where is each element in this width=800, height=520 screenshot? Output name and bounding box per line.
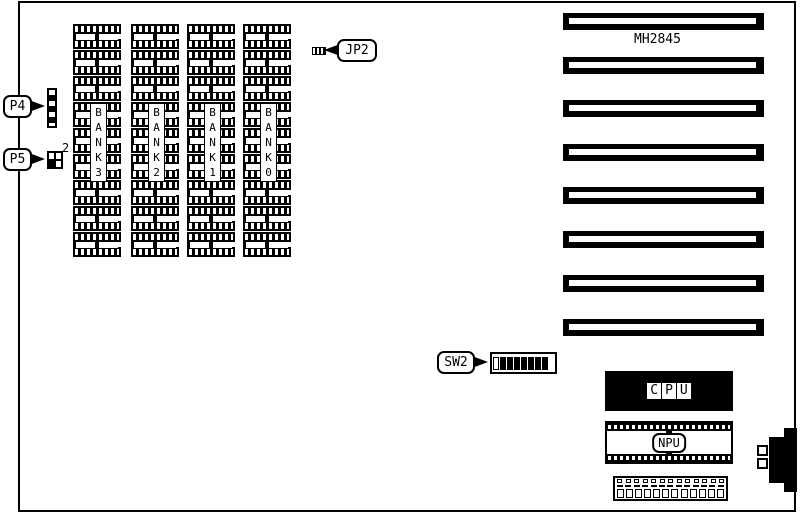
chip-body — [133, 190, 177, 196]
expansion-slot-contact-strip — [569, 62, 756, 68]
sw2-switch-label: SW2 — [437, 351, 475, 374]
chip-pin-row-icon — [75, 26, 119, 32]
dram-chip — [243, 180, 291, 205]
jp2-jumper-label: JP2 — [337, 39, 377, 62]
keyboard-connector-icon — [769, 437, 797, 483]
p5-pin-header-icon — [47, 151, 63, 169]
cpu-label-letter: U — [677, 383, 691, 399]
chip-pin-row-icon — [133, 249, 177, 255]
dram-chip — [187, 232, 235, 257]
chip-pin-row-icon — [189, 197, 233, 203]
chip-pin-row-icon — [189, 93, 233, 99]
memory-bank-label: BANK2 — [148, 103, 165, 182]
dram-chip — [131, 232, 179, 257]
chip-pin-row-icon — [75, 234, 119, 240]
chip-pin-row-icon — [75, 67, 119, 73]
expansion-slot-contact-strip — [569, 280, 756, 286]
chip-body — [75, 216, 119, 222]
chip-pin-row-icon — [245, 78, 289, 84]
chip-pin-row-icon — [189, 208, 233, 214]
keyboard-connector-pin-icon — [757, 458, 768, 469]
chip-pin-row-icon — [189, 52, 233, 58]
p4-connector-label: P4 — [3, 95, 32, 118]
memory-bank-label: BANK3 — [90, 103, 107, 182]
dip-switch-toggle-on — [500, 357, 506, 370]
expansion-slot — [563, 100, 764, 117]
chip-pin-row-icon — [133, 93, 177, 99]
chip-pin-row-icon — [75, 52, 119, 58]
chip-pin-row-icon — [189, 78, 233, 84]
memory-bank-label: BANK0 — [260, 103, 277, 182]
chip-body — [133, 242, 177, 248]
dip-switch-body — [490, 352, 557, 374]
chip-body — [75, 242, 119, 248]
chip-pin-row-icon — [245, 182, 289, 188]
memory-bank-label: BANK1 — [204, 103, 221, 182]
chip-pin-row-icon — [75, 78, 119, 84]
chip-body — [133, 60, 177, 66]
chip-body — [189, 86, 233, 92]
chip-pin-row-icon — [133, 67, 177, 73]
chip-pin-row-icon — [189, 67, 233, 73]
motherboard-diagram: BANK3BANK2BANK1BANK0 P4 P5 2 JP2 MH2845 … — [0, 0, 800, 520]
dram-chip — [131, 50, 179, 75]
chip-body — [245, 86, 289, 92]
dram-chip — [73, 24, 121, 49]
chip-body — [75, 86, 119, 92]
chip-pin-row-icon — [245, 234, 289, 240]
chip-body — [189, 34, 233, 40]
chip-pin-row-icon — [75, 41, 119, 47]
chip-pin-row-icon — [189, 182, 233, 188]
chip-body — [245, 216, 289, 222]
dip-switch-toggle-on — [542, 357, 548, 370]
chip-pin-row-icon — [189, 26, 233, 32]
chip-pin-row-icon — [245, 41, 289, 47]
chip-pin-row-icon — [133, 234, 177, 240]
chip-body — [189, 190, 233, 196]
chip-body — [75, 190, 119, 196]
dram-chip — [243, 232, 291, 257]
chip-pin-row-icon — [245, 52, 289, 58]
chip-pin-row-icon — [75, 182, 119, 188]
dram-chip — [187, 50, 235, 75]
chip-pin-row-icon — [245, 26, 289, 32]
npu-pin-row-bottom — [607, 454, 731, 462]
chip-pin-row-icon — [245, 223, 289, 229]
chip-body — [75, 34, 119, 40]
chip-pin-row-icon — [133, 78, 177, 84]
dram-chip — [73, 206, 121, 231]
dip-switch-toggle-on — [528, 357, 534, 370]
dram-chip — [187, 180, 235, 205]
p5-pin-count-superscript: 2 — [62, 141, 69, 155]
chip-pin-row-icon — [75, 208, 119, 214]
chip-pin-row-icon — [245, 197, 289, 203]
chip-pin-row-icon — [189, 41, 233, 47]
chip-pin-row-icon — [75, 223, 119, 229]
dram-chip — [187, 24, 235, 49]
expansion-slot — [563, 319, 764, 336]
dip-switch-toggle-on — [535, 357, 541, 370]
expansion-slot — [563, 144, 764, 161]
dram-chip — [243, 24, 291, 49]
chip-pin-row-icon — [133, 52, 177, 58]
dram-chip — [243, 50, 291, 75]
chip-pin-row-icon — [133, 223, 177, 229]
dram-chip — [131, 76, 179, 101]
chip-body — [133, 216, 177, 222]
chip-body — [245, 190, 289, 196]
chip-pin-row-icon — [133, 197, 177, 203]
dip-switch-toggle-on — [507, 357, 513, 370]
dram-chip — [243, 206, 291, 231]
chip-pin-row-icon — [189, 234, 233, 240]
dram-chip — [73, 180, 121, 205]
dip-switch-toggle-on — [514, 357, 520, 370]
chip-pin-row-icon — [133, 182, 177, 188]
chip-body — [133, 34, 177, 40]
chip-pin-row-icon — [245, 93, 289, 99]
chip-pin-row-icon — [245, 67, 289, 73]
dip-switch-toggle-on — [521, 357, 527, 370]
dram-chip — [73, 50, 121, 75]
chip-body — [75, 60, 119, 66]
cpu-label-letter: P — [662, 383, 676, 399]
expansion-slot-contact-strip — [569, 192, 756, 198]
chip-body — [189, 242, 233, 248]
dip-switch-toggle-off — [493, 357, 499, 370]
keyboard-connector-pin-icon — [757, 445, 768, 456]
bottom-connector-dash-row — [617, 485, 724, 487]
dram-chip — [73, 232, 121, 257]
npu-socket: NPU — [605, 421, 733, 464]
cpu-label-letter: C — [647, 383, 661, 399]
chip-pin-row-icon — [245, 249, 289, 255]
dram-chip — [187, 76, 235, 101]
expansion-slot — [563, 187, 764, 204]
bottom-connector-pin-row — [617, 489, 724, 498]
dram-chip — [131, 206, 179, 231]
dram-chip — [131, 24, 179, 49]
chip-pin-row-icon — [75, 93, 119, 99]
expansion-slot-contact-strip — [569, 324, 756, 330]
chip-body — [189, 216, 233, 222]
chip-pin-row-icon — [75, 249, 119, 255]
expansion-slot — [563, 57, 764, 74]
p4-pin-header-icon — [47, 88, 57, 128]
expansion-slot-contact-strip — [569, 149, 756, 155]
expansion-slot-contact-strip — [569, 236, 756, 242]
chip-body — [245, 34, 289, 40]
keyboard-connector-icon — [784, 478, 797, 492]
chip-pin-row-icon — [133, 208, 177, 214]
p5-connector-label: P5 — [3, 148, 32, 171]
expansion-slot — [563, 275, 764, 292]
chip-pin-row-icon — [133, 26, 177, 32]
dram-chip — [131, 180, 179, 205]
dram-chip — [243, 76, 291, 101]
npu-label: NPU — [652, 433, 686, 453]
board-model-text: MH2845 — [634, 32, 681, 47]
dram-chip — [187, 206, 235, 231]
chip-body — [189, 60, 233, 66]
bottom-pin-connector — [613, 476, 728, 501]
bottom-connector-clip-row — [617, 479, 724, 483]
npu-pin-row-top — [607, 423, 731, 431]
chip-body — [245, 242, 289, 248]
chip-pin-row-icon — [75, 197, 119, 203]
cpu-chip: CPU — [605, 371, 733, 411]
chip-pin-row-icon — [189, 249, 233, 255]
chip-pin-row-icon — [133, 41, 177, 47]
expansion-slot-contact-strip — [569, 18, 756, 24]
expansion-slot — [563, 13, 764, 30]
chip-pin-row-icon — [189, 223, 233, 229]
chip-body — [133, 86, 177, 92]
expansion-slot-contact-strip — [569, 105, 756, 111]
dram-chip — [73, 76, 121, 101]
expansion-slot — [563, 231, 764, 248]
chip-pin-row-icon — [245, 208, 289, 214]
chip-body — [245, 60, 289, 66]
